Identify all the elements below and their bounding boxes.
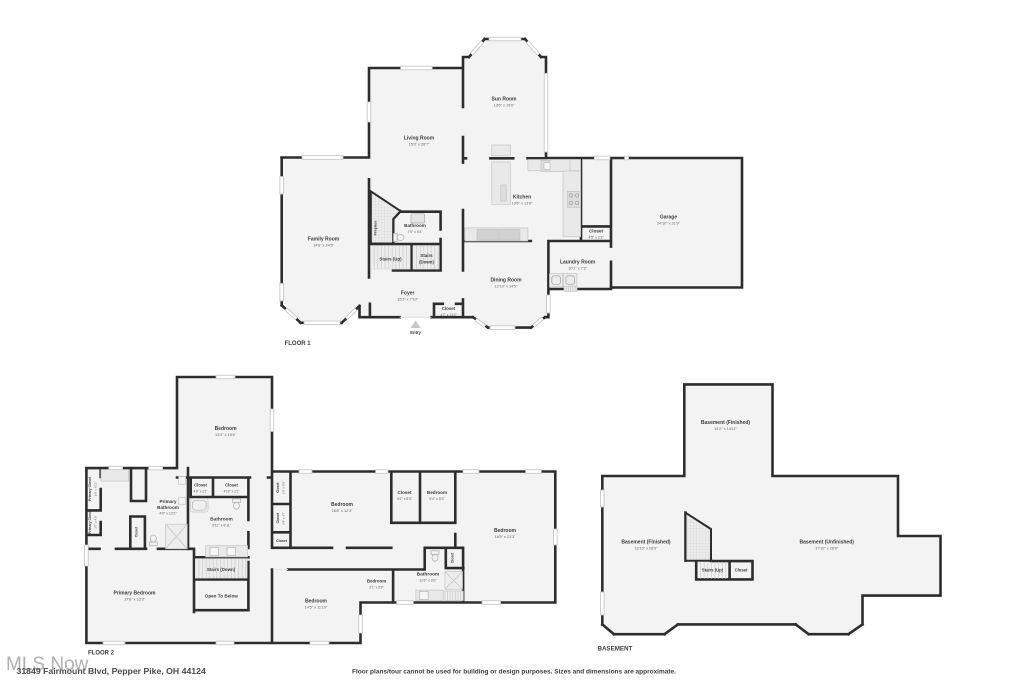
svg-text:Stairs (Down): Stairs (Down)	[207, 567, 236, 572]
svg-text:Primary Closet: Primary Closet	[88, 509, 92, 534]
svg-text:14'6" x 24'5": 14'6" x 24'5"	[313, 244, 334, 248]
svg-text:2'0" x 6'11": 2'0" x 6'11"	[93, 482, 97, 497]
svg-text:Kitchen: Kitchen	[513, 195, 531, 201]
svg-text:Closet: Closet	[276, 512, 280, 523]
svg-text:Open To Below: Open To Below	[205, 594, 239, 599]
svg-text:13'10" x 26'9": 13'10" x 26'9"	[635, 547, 659, 551]
svg-text:Entry: Entry	[410, 330, 421, 335]
svg-text:Basement (Unfinished): Basement (Unfinished)	[799, 540, 854, 546]
svg-text:Bedroom: Bedroom	[367, 579, 386, 584]
svg-text:2'9" x 4'7": 2'9" x 4'7"	[281, 512, 285, 525]
svg-text:4'9" x 2'1": 4'9" x 2'1"	[194, 490, 208, 494]
svg-text:Bedroom: Bedroom	[427, 490, 447, 495]
svg-text:Bedroom: Bedroom	[215, 426, 238, 432]
svg-text:Closet: Closet	[225, 483, 238, 488]
svg-text:FLOOR 2: FLOOR 2	[88, 651, 115, 657]
svg-text:4'10" x 2'1": 4'10" x 2'1"	[224, 490, 240, 494]
svg-text:4'7" x 1'10": 4'7" x 1'10"	[440, 313, 457, 317]
svg-text:13'6" x 19'6": 13'6" x 19'6"	[494, 104, 515, 108]
svg-text:Living Room: Living Room	[404, 136, 435, 142]
svg-text:Bathroom: Bathroom	[157, 505, 179, 510]
svg-text:24'10" x 21'9": 24'10" x 21'9"	[657, 222, 681, 226]
svg-text:Fireplace: Fireplace	[374, 220, 378, 235]
svg-text:14'5" x 11'10": 14'5" x 11'10"	[305, 606, 328, 610]
svg-text:4'5" x 2'3": 4'5" x 2'3"	[588, 236, 604, 240]
svg-text:Floor plans/tour cannot be use: Floor plans/tour cannot be used for buil…	[352, 669, 676, 676]
svg-text:Stairs (Up): Stairs (Up)	[702, 568, 724, 573]
svg-text:15'3" x 26'7": 15'3" x 26'7"	[409, 143, 430, 147]
svg-text:Bathroom: Bathroom	[210, 517, 233, 523]
svg-text:19'6" x 13'8": 19'6" x 13'8"	[512, 202, 533, 206]
svg-text:Bedroom: Bedroom	[305, 599, 328, 605]
svg-text:Sun Room: Sun Room	[492, 97, 518, 103]
svg-text:5'4" x 8'3": 5'4" x 8'3"	[429, 497, 445, 501]
svg-text:Closet: Closet	[735, 568, 748, 573]
svg-text:Basement (Finished): Basement (Finished)	[701, 420, 751, 426]
svg-text:2'9" x 5'9": 2'9" x 5'9"	[281, 481, 285, 494]
svg-text:17'10" x 26'9": 17'10" x 26'9"	[815, 547, 839, 551]
svg-text:15'3" x 7'10": 15'3" x 7'10"	[397, 298, 418, 302]
svg-text:7'5" x 5'4": 7'5" x 5'4"	[407, 230, 423, 234]
svg-text:3'1" x 5'9": 3'1" x 5'9"	[369, 586, 384, 590]
svg-text:14'2" x 14'11": 14'2" x 14'11"	[714, 427, 737, 431]
svg-text:10'1" x 7'3": 10'1" x 7'3"	[568, 267, 587, 271]
svg-text:Closet: Closet	[135, 526, 139, 537]
svg-text:Closet: Closet	[276, 539, 288, 543]
svg-text:Bathroom: Bathroom	[417, 572, 440, 578]
svg-text:17'8" x 13'3": 17'8" x 13'3"	[124, 598, 145, 602]
svg-text:Basement (Finished): Basement (Finished)	[621, 540, 671, 546]
svg-text:(Down): (Down)	[419, 260, 434, 265]
svg-text:Bedroom: Bedroom	[331, 502, 354, 508]
svg-text:16'9" x 21'3": 16'9" x 21'3"	[495, 535, 516, 539]
svg-text:4'2" x 8'3": 4'2" x 8'3"	[397, 497, 413, 501]
svg-text:Foyer: Foyer	[401, 291, 415, 297]
svg-text:9'11" x 8'11": 9'11" x 8'11"	[212, 524, 232, 528]
svg-text:Stairs: Stairs	[420, 253, 433, 258]
svg-text:12'10" x 14'5": 12'10" x 14'5"	[495, 285, 519, 289]
svg-text:4'9" x 13'1": 4'9" x 13'1"	[159, 512, 177, 516]
svg-text:Primary Bedroom: Primary Bedroom	[114, 591, 157, 597]
svg-text:Closet: Closet	[442, 306, 456, 311]
svg-text:Closet: Closet	[397, 490, 412, 495]
svg-text:Family Room: Family Room	[308, 237, 340, 243]
svg-text:Closet: Closet	[276, 482, 280, 493]
svg-text:BASEMENT: BASEMENT	[598, 646, 633, 653]
svg-text:Closet: Closet	[589, 229, 604, 234]
svg-text:Bathroom: Bathroom	[404, 223, 426, 228]
svg-text:Laundry Room: Laundry Room	[560, 260, 596, 266]
svg-text:Primary Closet: Primary Closet	[88, 476, 92, 501]
svg-text:FLOOR 1: FLOOR 1	[285, 341, 312, 347]
svg-text:Closet: Closet	[194, 483, 207, 488]
svg-text:16'8" x 12'4": 16'8" x 12'4"	[332, 509, 353, 513]
svg-text:Closet: Closet	[451, 552, 455, 563]
svg-text:Bedroom: Bedroom	[494, 528, 517, 534]
svg-text:Stairs (Up): Stairs (Up)	[379, 257, 402, 262]
svg-text:Dining Room: Dining Room	[490, 278, 522, 284]
svg-text:13'4" x 19'4": 13'4" x 19'4"	[215, 433, 236, 437]
svg-text:31849 Fairmount Blvd, Pepper P: 31849 Fairmount Blvd, Pepper Pike, OH 44…	[17, 666, 206, 676]
svg-text:11'6" x 9'9": 11'6" x 9'9"	[419, 579, 437, 583]
svg-text:Garage: Garage	[660, 215, 677, 221]
svg-text:Primary: Primary	[159, 499, 177, 504]
svg-text:2'0" x 4'9": 2'0" x 4'9"	[93, 515, 97, 528]
